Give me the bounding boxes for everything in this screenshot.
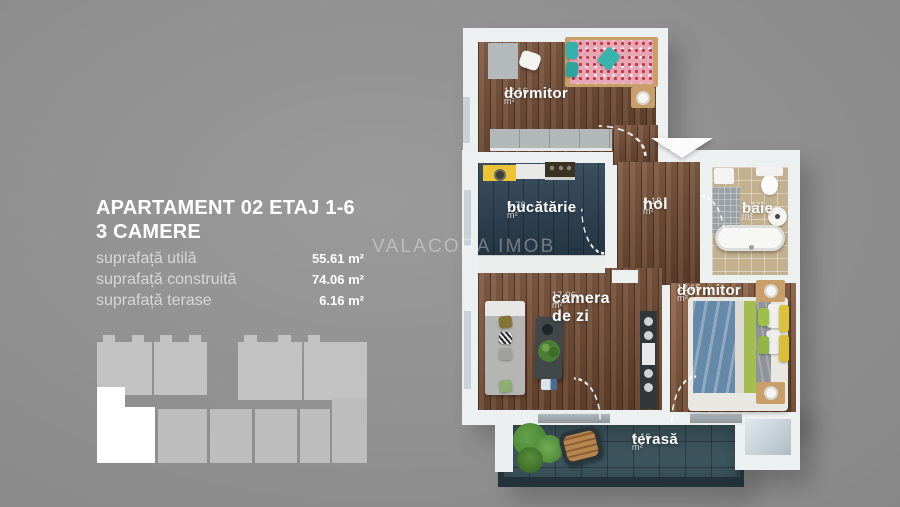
apartment-title-line2: 3 CAMERE — [96, 220, 364, 244]
room-area: 4.18 m² — [643, 197, 662, 217]
door-arc-kitchen — [581, 207, 605, 255]
area-summary: suprafață utilă 55.61 m² suprafață const… — [96, 250, 364, 313]
speaker-icon — [644, 317, 653, 326]
lamp-icon — [764, 284, 778, 298]
area-row-terase: suprafață terase 6.16 m² — [96, 292, 364, 313]
page: { "panel": { "title_line1": "APARTAMENT … — [0, 0, 900, 507]
building-minimap — [92, 332, 372, 467]
lamp-icon — [764, 386, 778, 400]
floor-plan: dormitor 12.16 m² bucătărie 5.78 m² hol … — [455, 25, 805, 495]
pillow — [566, 42, 578, 59]
door-arc-bedroom2 — [671, 375, 697, 423]
pillow — [758, 336, 769, 354]
bench-slats — [562, 430, 599, 463]
minimap-bottom-row — [158, 398, 367, 463]
room-area: 12.65 m² — [677, 284, 701, 304]
info-panel: APARTAMENT 02 ETAJ 1-6 3 CAMERE suprafaț… — [96, 196, 364, 313]
kitchen-counter-white — [516, 164, 545, 179]
toilet-icon — [761, 175, 778, 195]
room-area: 6.16 m² — [632, 433, 651, 453]
area-row-utila: suprafață utilă 55.61 m² — [96, 250, 364, 271]
speaker-icon — [644, 383, 653, 392]
entrance-arrow-icon — [650, 137, 714, 159]
pillow — [779, 335, 789, 362]
nightstand — [756, 280, 785, 302]
scene: APARTAMENT 02 ETAJ 1-6 3 CAMERE suprafaț… — [0, 0, 900, 507]
door-arc-terrace — [573, 377, 601, 421]
room-area: 5.78 m² — [507, 201, 526, 221]
bed2-white-fold — [735, 301, 744, 393]
speaker-icon — [644, 331, 653, 340]
area-value: 6.16 m² — [319, 293, 364, 308]
stove-icon — [545, 162, 575, 180]
wall-stub — [612, 270, 638, 283]
nightstand — [631, 87, 655, 108]
area-row-construita: suprafață construită 74.06 m² — [96, 271, 364, 292]
room-area: 3.77 m² — [742, 202, 761, 222]
bed2-green-runner — [744, 301, 756, 393]
bed2-blue-duvet — [693, 301, 735, 393]
tray-icon — [541, 379, 557, 390]
area-label: suprafață construită — [96, 271, 237, 289]
area-value: 55.61 m² — [312, 251, 364, 266]
minimap-highlighted-unit — [97, 387, 155, 463]
pillow — [499, 331, 513, 344]
area-label: suprafață terase — [96, 292, 212, 310]
pillow — [779, 305, 789, 332]
area-label: suprafață utilă — [96, 250, 197, 268]
hall-floor — [617, 162, 700, 285]
apartment-title-line1: APARTAMENT 02 ETAJ 1-6 — [96, 196, 364, 220]
balcony-glass — [745, 419, 791, 455]
kitchen-sink-icon — [494, 169, 506, 181]
tv-unit-shelf — [642, 343, 655, 365]
terrace-plant-icon — [517, 447, 543, 473]
room-area: 17.06 m² — [552, 291, 576, 311]
washing-machine-icon — [714, 168, 734, 184]
pillow — [498, 315, 512, 328]
minimap-top-row — [97, 335, 367, 407]
speaker-icon — [644, 369, 653, 378]
area-value: 74.06 m² — [312, 272, 364, 287]
wardrobe — [490, 129, 612, 151]
door-arc-bedroom1 — [597, 125, 647, 157]
room-area: 12.16 m² — [504, 87, 528, 107]
pillow — [565, 61, 579, 77]
bathtub-icon — [715, 225, 785, 251]
bedroom2-door-glass — [690, 412, 742, 425]
nightstand — [756, 382, 785, 404]
pillow — [758, 308, 769, 326]
sofa-blanket — [485, 301, 525, 316]
table-plant-icon — [538, 340, 560, 362]
lamp-icon — [636, 91, 650, 105]
window-bedroom1 — [463, 97, 470, 143]
pillow — [499, 348, 512, 360]
pillow — [498, 379, 513, 393]
door-arc-bathroom — [701, 195, 725, 239]
desk — [488, 43, 518, 79]
terrace-side-wall — [495, 408, 513, 472]
window-livingroom — [464, 311, 471, 389]
watermark-text: VALACORA IMOB — [372, 236, 555, 258]
decor-bowl-icon — [542, 324, 553, 335]
